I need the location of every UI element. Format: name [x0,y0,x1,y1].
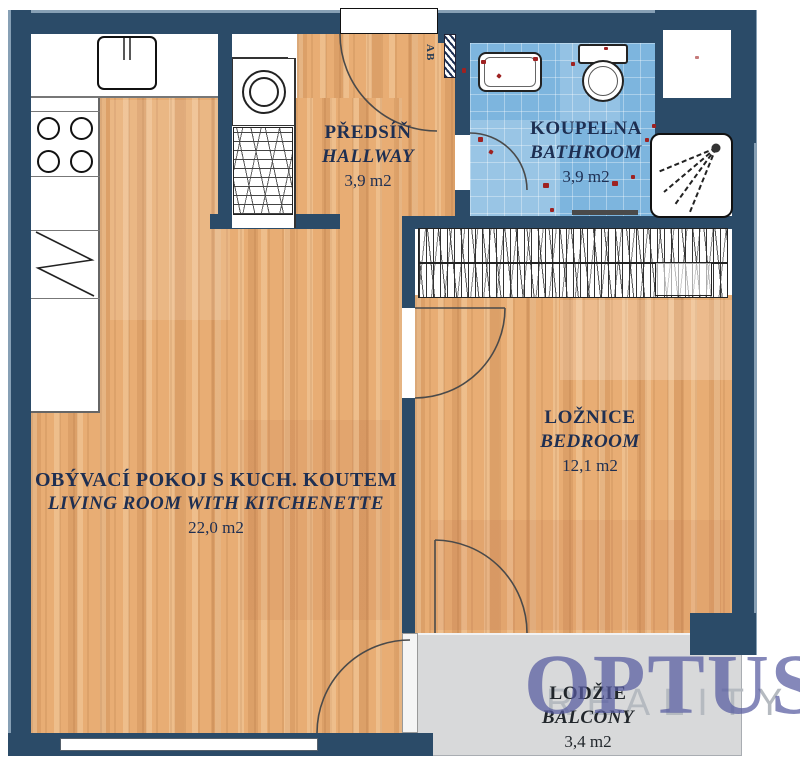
room-name-en: BATHROOM [530,141,642,165]
tile-accent [571,62,575,66]
wall-top-west [8,10,340,34]
balcony-door-frame [402,633,418,733]
stove-burner-icon [70,150,93,173]
stove-burner-icon [70,117,93,140]
tile-accent [645,138,649,142]
counter-divider [31,298,100,299]
bedroom-label: LOŽNICE BEDROOM 12,1 m2 [540,406,640,478]
room-name-cs: OBÝVACÍ POKOJ S KUCH. KOUTEM [35,468,397,492]
tile-accent [695,56,699,59]
room-name-cs: KOUPELNA [530,117,642,141]
room-area: 12,1 m2 [540,454,640,478]
wall-bedroom-corner-stub [690,613,756,655]
wall-niche [232,34,288,58]
wall-bathroom-left-upper [455,34,470,135]
room-area: 3,9 m2 [322,169,414,193]
wall-divider-lower [402,398,415,633]
room-name-en: BALCONY [542,706,634,730]
room-name-cs: LOŽNICE [540,406,640,430]
living-room-label: OBÝVACÍ POKOJ S KUCH. KOUTEM LIVING ROOM… [35,468,397,540]
hallway-label: PŘEDSÍŇ HALLWAY 3,9 m2 [322,121,414,193]
room-name-en: HALLWAY [322,145,414,169]
tile-accent [478,137,483,142]
tile-accent [652,124,656,128]
tile-accent [481,60,486,64]
shaft-niche [663,30,731,98]
entrance-door-leaf [340,8,438,34]
wall-left [8,10,31,733]
living-room-floor-left [31,413,100,733]
counter-divider [31,230,100,231]
balcony-label: LODŽIE BALCONY 3,4 m2 [542,682,634,754]
room-area: 3,4 m2 [542,730,634,754]
toilet-bowl-inner-icon [588,66,618,96]
room-area: 3,9 m2 [530,165,642,189]
shower-icon [650,133,733,218]
living-room-window [60,738,318,751]
tile-accent [533,57,538,61]
tile-accent [550,208,554,212]
room-name-en: BEDROOM [540,430,640,454]
bathroom-sink-basin-icon [484,57,536,87]
stove-burner-icon [37,117,60,140]
door-type-label: AB [424,44,436,61]
room-area: 22,0 m2 [35,516,397,540]
room-name-cs: LODŽIE [542,682,634,706]
wall-divider-upper [402,228,415,308]
laundry-cabinet-icon [233,127,293,215]
stove-burner-icon [37,150,60,173]
kitchen-sink-icon [97,36,157,90]
counter-divider [31,111,100,112]
washing-machine-drum-inner-icon [249,77,279,107]
wardrobe-section [655,262,712,296]
room-name-en: LIVING ROOM WITH KITCHENETTE [35,492,397,516]
wall-bathroom-left-lower [455,190,470,218]
tile-accent [604,47,608,50]
floorplan: REALITY [0,0,800,759]
counter-divider [31,176,100,177]
bathroom-threshold [572,210,638,215]
bathroom-label: KOUPELNA BATHROOM 3,9 m2 [530,117,642,189]
wall-alcove-left [218,34,232,228]
tile-accent [462,68,466,73]
kitchen-counter-left [31,98,100,413]
room-name-cs: PŘEDSÍŇ [322,121,414,145]
door-stop-marker [444,34,456,78]
